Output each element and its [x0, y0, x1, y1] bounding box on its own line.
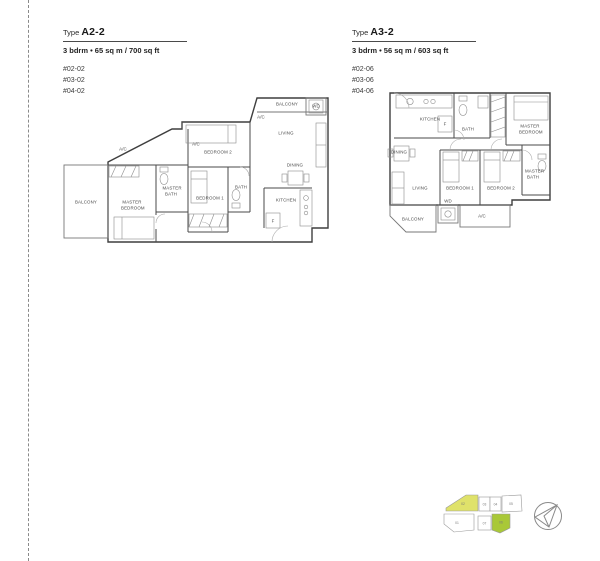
room-label-dining: DINING: [287, 162, 303, 168]
room-label-bath: BATH: [462, 126, 474, 132]
room-label-ac: A/C: [119, 146, 127, 152]
keyplan-label-06: 06: [499, 521, 503, 525]
room-label-balcony: BALCONY: [402, 216, 424, 222]
room-label-ac: A/C: [478, 213, 486, 219]
room-label-master-bedroom: MASTER BEDROOM: [519, 124, 541, 135]
floorplan-a2-2-drawing: [60, 95, 330, 253]
room-label-master-bath: MASTER BATH: [163, 186, 180, 197]
plan-spec: 3 bdrm • 65 sq m / 700 sq ft: [63, 46, 193, 55]
type-name: A2-2: [81, 26, 105, 38]
room-label-master-bedroom: MASTER BEDROOM: [121, 200, 143, 211]
outer-walls: [108, 98, 328, 242]
room-label-ac: A/C: [192, 141, 200, 147]
key-plan-drawing: 02 03 04 05 01 07 06: [440, 490, 532, 546]
site-key-plan: 02 03 04 05 01 07 06: [440, 490, 532, 546]
type-name: A3-2: [370, 26, 394, 38]
header-rule: [63, 41, 187, 42]
room-label-dining: DINING: [391, 149, 407, 155]
plan-a3-2-header: Type A3-2 3 bdrm • 56 sq m / 603 sq ft #…: [352, 26, 482, 97]
room-label-balcony-top: BALCONY: [276, 101, 298, 107]
unit-number: #03-02: [63, 75, 193, 86]
keyplan-label-05: 05: [509, 502, 513, 506]
room-label-master-bath: MASTER BATH: [525, 169, 541, 180]
door-swings: [156, 167, 288, 242]
furniture: [109, 100, 326, 239]
keyplan-label-04: 04: [494, 503, 498, 507]
plan-a2-2-header: Type A2-2 3 bdrm • 65 sq m / 700 sq ft #…: [63, 26, 193, 97]
floorplan-a3-2: KITCHEN F BATH MASTER BEDROOM DINING LIV…: [350, 88, 560, 238]
unit-stack-list: #02-02 #03-02 #04-02: [63, 64, 193, 97]
keyplan-label-01: 01: [455, 521, 459, 525]
room-label-kitchen: KITCHEN: [420, 116, 440, 122]
furniture: [388, 95, 548, 220]
room-label-bedroom2: BEDROOM 2: [487, 185, 515, 191]
balcony-walls: [64, 98, 328, 238]
room-label-living: LIVING: [278, 130, 293, 136]
type-prefix: Type: [352, 28, 368, 37]
keyplan-label-02: 02: [461, 502, 465, 506]
floorplan-a2-2: BALCONY MASTER BEDROOM MASTER BATH BEDRO…: [60, 95, 330, 253]
room-label-ac: A/C: [257, 114, 265, 120]
room-label-fridge: F: [444, 121, 447, 127]
room-label-balcony: BALCONY: [71, 199, 101, 205]
type-line: Type A2-2: [63, 26, 193, 38]
keyplan-label-07: 07: [483, 522, 487, 526]
unit-number: #03-06: [352, 75, 482, 86]
plan-spec: 3 bdrm • 56 sq m / 603 sq ft: [352, 46, 482, 55]
keyplan-label-03: 03: [483, 503, 487, 507]
type-prefix: Type: [63, 28, 79, 37]
room-label-kitchen: KITCHEN: [276, 197, 296, 203]
unit-number: #02-06: [352, 64, 482, 75]
header-rule: [352, 41, 476, 42]
room-label-bedroom1: BEDROOM 1: [196, 195, 224, 201]
room-label-bath: BATH: [235, 184, 247, 190]
compass-icon: [528, 496, 568, 536]
room-label-living: LIVING: [412, 185, 427, 191]
room-label-bedroom1: BEDROOM 1: [446, 185, 474, 191]
page-perforation-line: [28, 0, 29, 561]
type-line: Type A3-2: [352, 26, 482, 38]
room-label-bedroom2: BEDROOM 2: [204, 149, 232, 155]
room-label-wd: WD: [312, 103, 320, 109]
unit-number: #02-02: [63, 64, 193, 75]
room-label-fridge: F: [272, 218, 275, 224]
room-label-wd: WD: [444, 198, 452, 204]
keyplan-unit-01: [444, 514, 474, 532]
floorplan-a3-2-drawing: [350, 88, 560, 238]
